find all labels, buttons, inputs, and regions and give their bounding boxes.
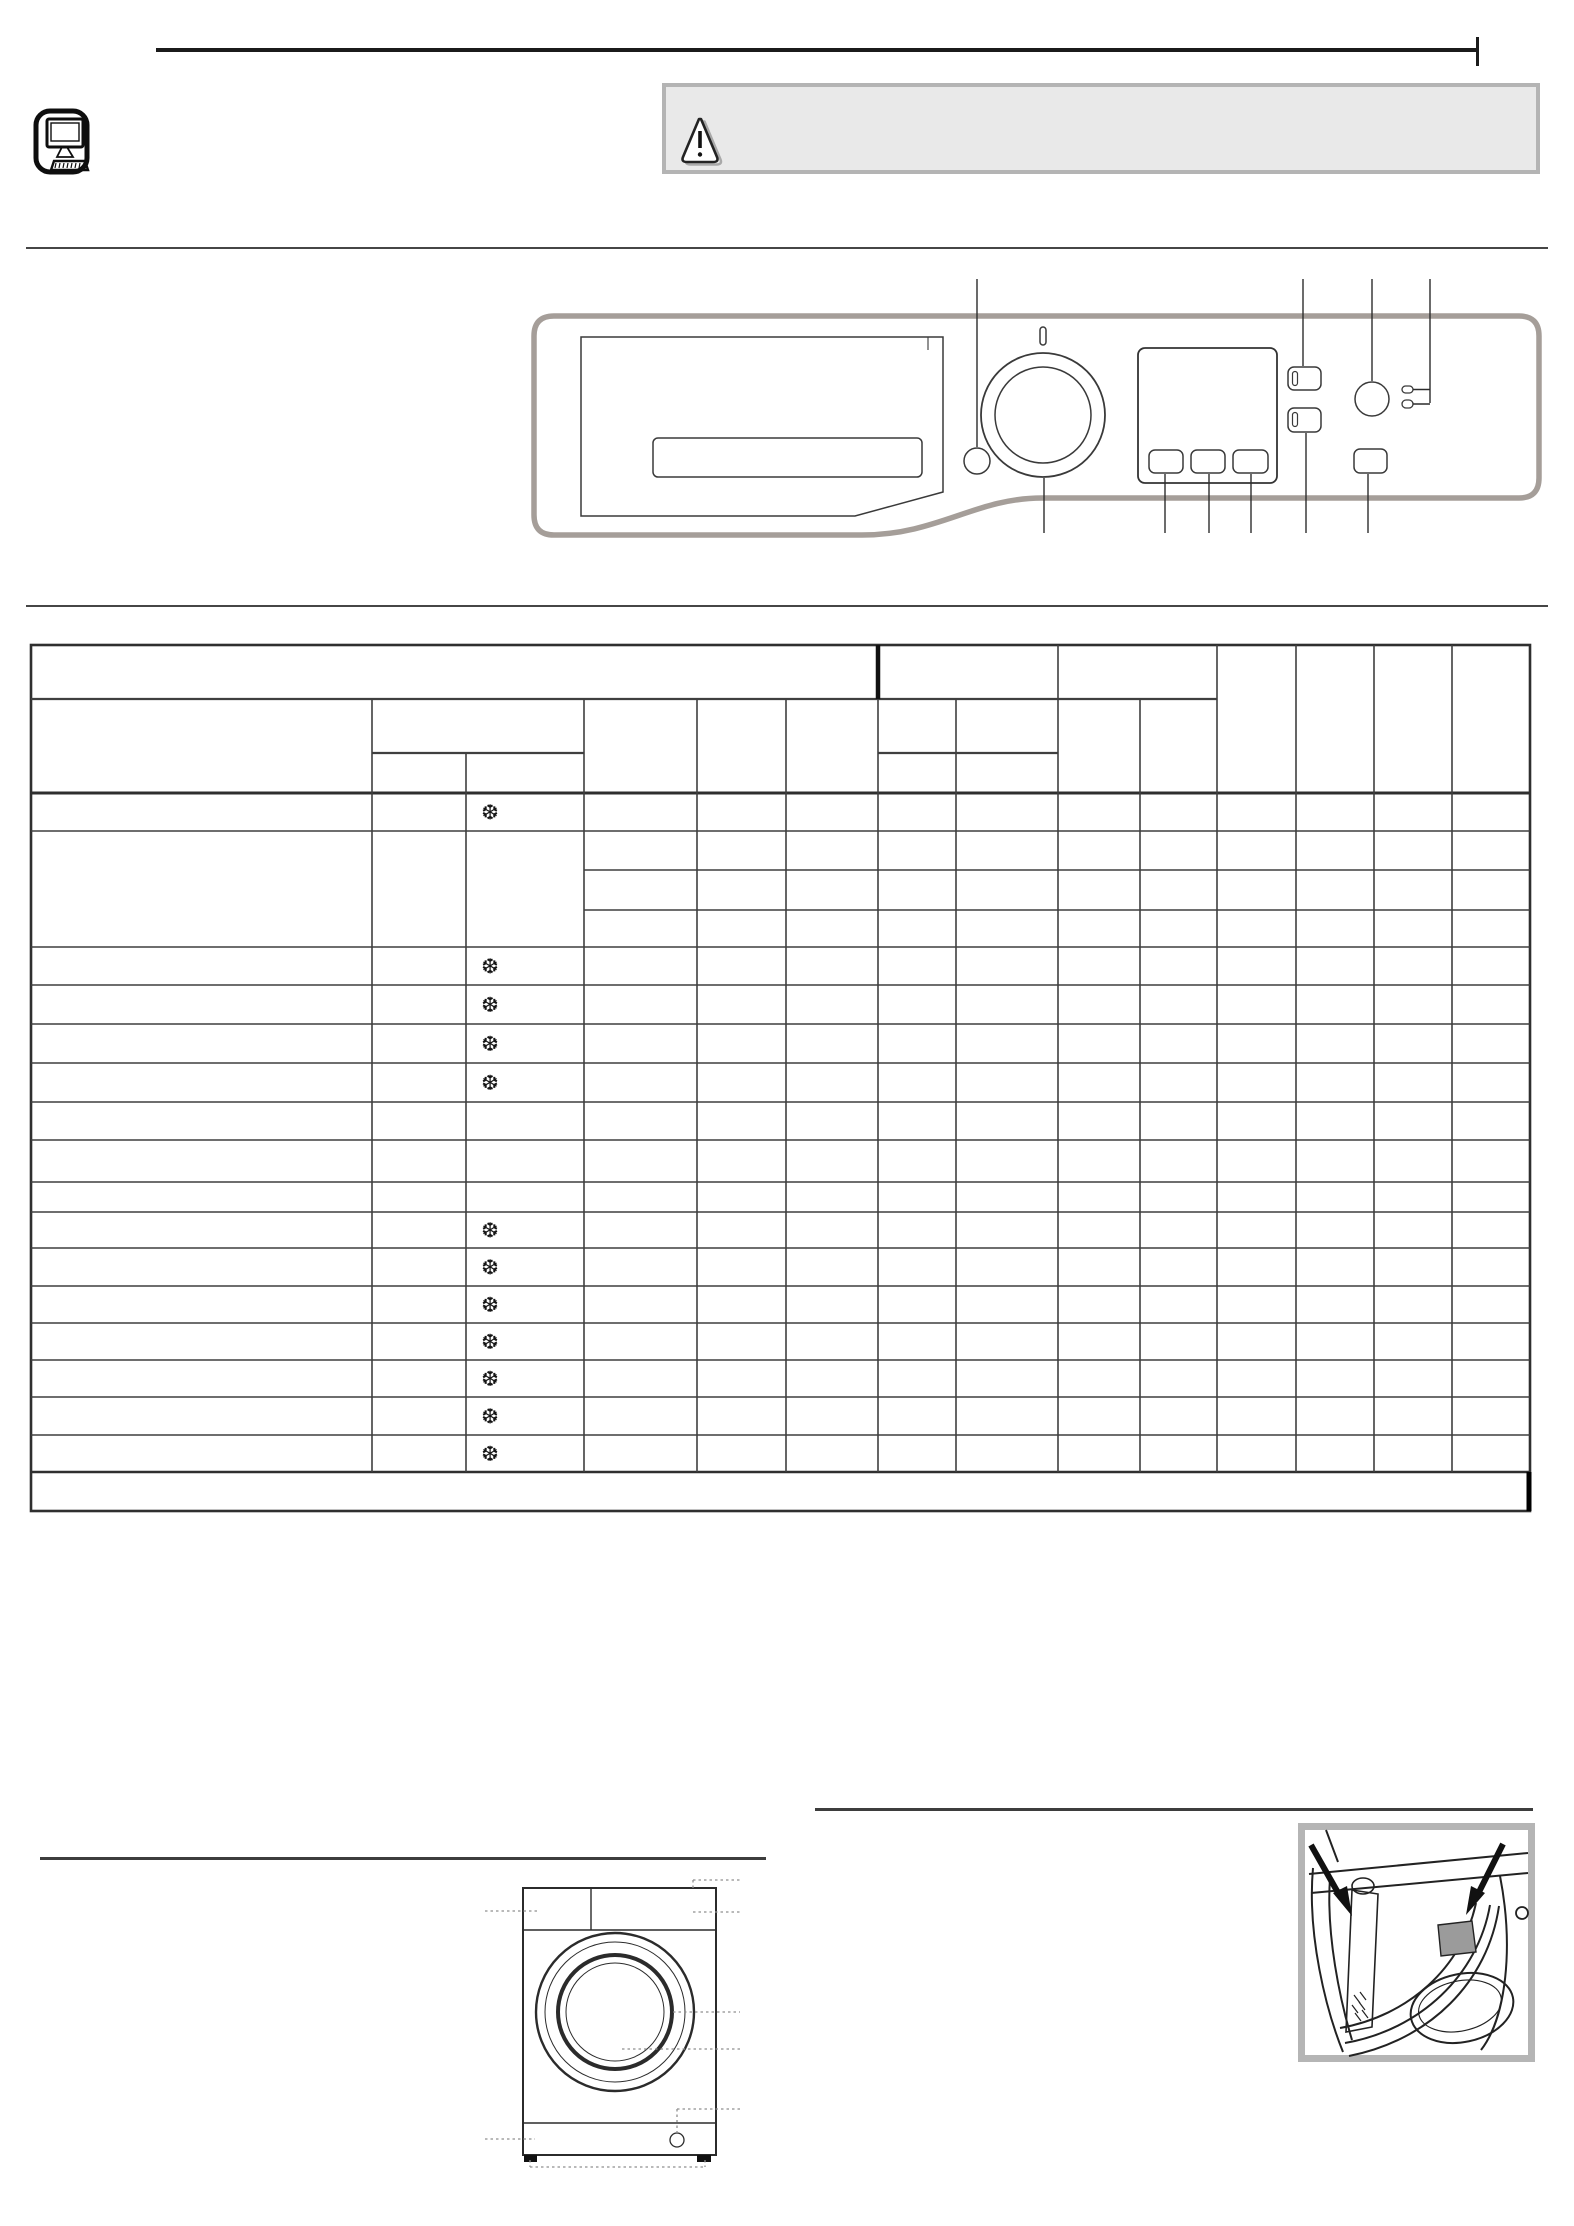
cold-wash-snowflake-icon: ❆ [481,1256,499,1280]
cold-wash-snowflake-icon: ❆ [481,1367,499,1391]
filter-cap [670,2133,684,2147]
computer-icon [36,111,88,172]
aux-circle-button [964,448,990,474]
control-panel-diagram [534,279,1539,535]
table-outer-border [31,645,1530,1511]
programme-table: ❆❆❆❆❆❆❆❆❆❆❆❆ [31,645,1530,1511]
cold-wash-snowflake-icon: ❆ [481,1219,499,1243]
powder-patch [1438,1921,1476,1956]
cold-wash-snowflake-icon: ❆ [481,955,499,979]
control-panel-outline [534,316,1539,535]
warning-triangle-icon [683,119,722,165]
foot-right [697,2155,711,2162]
manual-page: ❆❆❆❆❆❆❆❆❆❆❆❆ [0,0,1574,2226]
cold-wash-snowflake-icon: ❆ [481,993,499,1017]
detergent-compartment-arrow-right [1466,1844,1503,1915]
diagram-overlay: ❆❆❆❆❆❆❆❆❆❆❆❆ [0,0,1574,2226]
detergent-drawer-figure [1309,1830,1528,2056]
machine-front-figure [485,1880,742,2167]
powder-hatch [1352,1992,1368,2021]
machine-body [523,1888,716,2155]
cold-wash-snowflake-icon: ❆ [481,1032,499,1056]
softener-cup [1404,1964,1520,2052]
detergent-compartment-arrow-left [1311,1845,1352,1916]
cold-wash-snowflake-icon: ❆ [481,1442,499,1466]
cold-wash-snowflake-icon: ❆ [481,1405,499,1429]
cold-wash-snowflake-icon: ❆ [481,1293,499,1317]
cold-wash-snowflake-icon: ❆ [481,801,499,825]
cold-wash-snowflake-icon: ❆ [481,1330,499,1354]
cold-wash-snowflake-icon: ❆ [481,1071,499,1095]
